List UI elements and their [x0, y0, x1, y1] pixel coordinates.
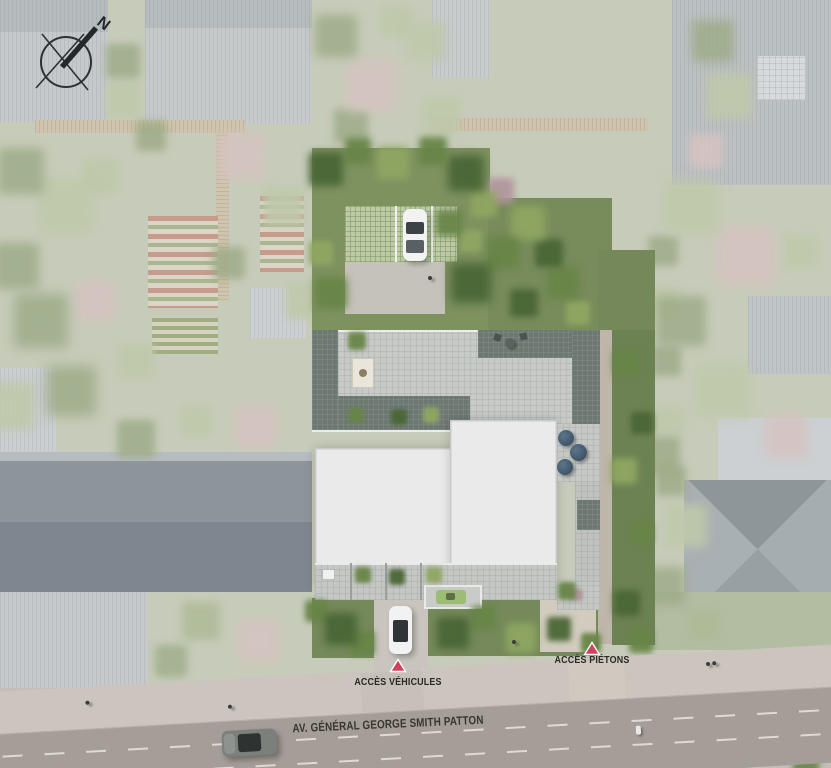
building-dark-roof-right-column [572, 330, 600, 426]
cyclist-figure [636, 726, 642, 735]
road-car-hood [223, 733, 235, 754]
context-roof-top-2-ridge [145, 0, 312, 28]
parasol-2 [570, 444, 587, 461]
building-se-terrace [557, 582, 600, 610]
context-garden-bed-group-2 [260, 196, 304, 272]
north-compass-icon: N [28, 4, 132, 108]
context-shed [250, 288, 306, 338]
driveway-car-sunroof [393, 620, 408, 642]
play-area-toy [446, 593, 455, 600]
site-plan-canvas: ACCÈS VÉHICULES ACCÈS PIÉTONS AV. GÉNÉRA… [0, 0, 831, 768]
context-roof-top-mid [432, 0, 490, 78]
site-lawn-east-strip [612, 330, 655, 645]
context-boardwalk-left [35, 120, 245, 133]
access-vehicles-marker-icon [389, 658, 407, 673]
parking-pavers-pad [345, 206, 457, 262]
terrace-divider-2 [385, 563, 387, 600]
parking-stall-line-1 [395, 206, 397, 262]
pedestrian-sidewalk-east [706, 662, 710, 666]
terrace-appliance [322, 569, 335, 580]
context-roof-right-flat [718, 418, 831, 480]
pedestrian-site-access [512, 640, 516, 644]
context-roof-mid-left [0, 452, 312, 592]
terrace-divider-3 [420, 563, 422, 600]
pedestrian-site-court [428, 276, 432, 280]
access-vehicles-label: ACCÈS VÉHICULES [339, 676, 458, 688]
site-front-garden-left [312, 598, 374, 658]
context-roof-top-right [672, 0, 831, 185]
road-car-glass [237, 733, 261, 752]
context-boardwalk-right [432, 118, 648, 131]
parking-stall-line-2 [431, 206, 433, 262]
parked-car-rear-window [406, 240, 424, 253]
rooftop-rug-table [359, 369, 367, 377]
access-pedestrians-label: ACCÈS PIÉTONS [533, 654, 652, 666]
context-roof-left-edge [0, 368, 56, 452]
context-roof-right-mid [748, 296, 831, 374]
context-roof-mid-left-edge [0, 452, 312, 461]
driveway-car-white [389, 606, 412, 654]
site-lawn-top-right [488, 198, 612, 332]
parasol-3 [557, 459, 573, 475]
parasol-1 [558, 430, 574, 446]
context-skylight-top-right [757, 56, 805, 100]
parked-car-windshield [406, 222, 424, 234]
parking-service-court [345, 262, 445, 314]
building-east-dark-roof [577, 500, 600, 530]
context-garden-bed-group-1 [148, 216, 218, 308]
site-lawn-right-upper [598, 250, 655, 332]
road-car-gray [221, 728, 277, 757]
building-east-walk [575, 482, 600, 582]
context-garden-bed-group-3 [152, 318, 218, 354]
parked-car-white [403, 209, 427, 261]
rooftop-table [505, 338, 515, 348]
building-dark-roof-left-column [312, 330, 338, 430]
driveway-flush-pedestrians [568, 660, 626, 701]
terrace-divider-1 [350, 563, 352, 600]
